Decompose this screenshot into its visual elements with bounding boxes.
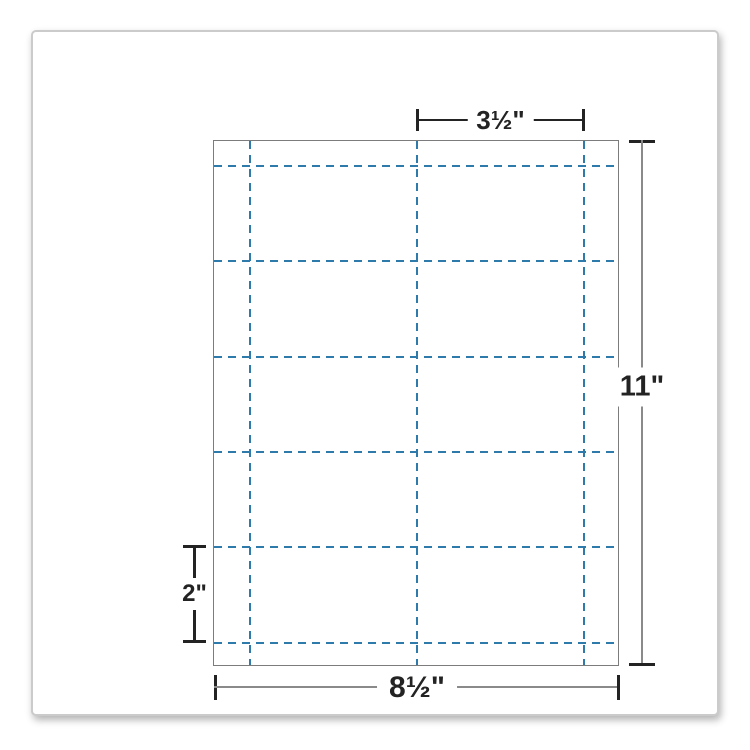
dimension-card-height: 2"	[183, 545, 206, 643]
cut-line-horizontal	[214, 356, 618, 358]
dimension-label-card-height: 2"	[180, 578, 209, 610]
cut-line-horizontal	[214, 546, 618, 548]
cut-line-vertical	[416, 141, 418, 665]
image-frame: 3½" 11" 8½" 2"	[31, 30, 719, 716]
dimension-tick	[582, 109, 585, 131]
cut-line-horizontal	[214, 165, 618, 167]
cut-line-vertical	[583, 141, 585, 665]
diagram-stage: 3½" 11" 8½" 2"	[0, 0, 750, 750]
dimension-sheet-width: 8½"	[214, 675, 620, 700]
sheet-outline	[213, 140, 619, 666]
dimension-card-width: 3½"	[416, 109, 585, 131]
dimension-sheet-height: 11"	[629, 140, 655, 666]
cut-line-horizontal	[214, 260, 618, 262]
cut-line-horizontal	[214, 642, 618, 644]
cut-line-horizontal	[214, 451, 618, 453]
dimension-label-sheet-width: 8½"	[377, 673, 457, 703]
dimension-label-card-width: 3½"	[467, 107, 533, 133]
cut-line-vertical	[249, 141, 251, 665]
dimension-tick	[183, 640, 206, 643]
dimension-tick	[629, 663, 655, 666]
dimension-label-sheet-height: 11"	[618, 368, 666, 407]
dimension-tick	[617, 675, 620, 700]
